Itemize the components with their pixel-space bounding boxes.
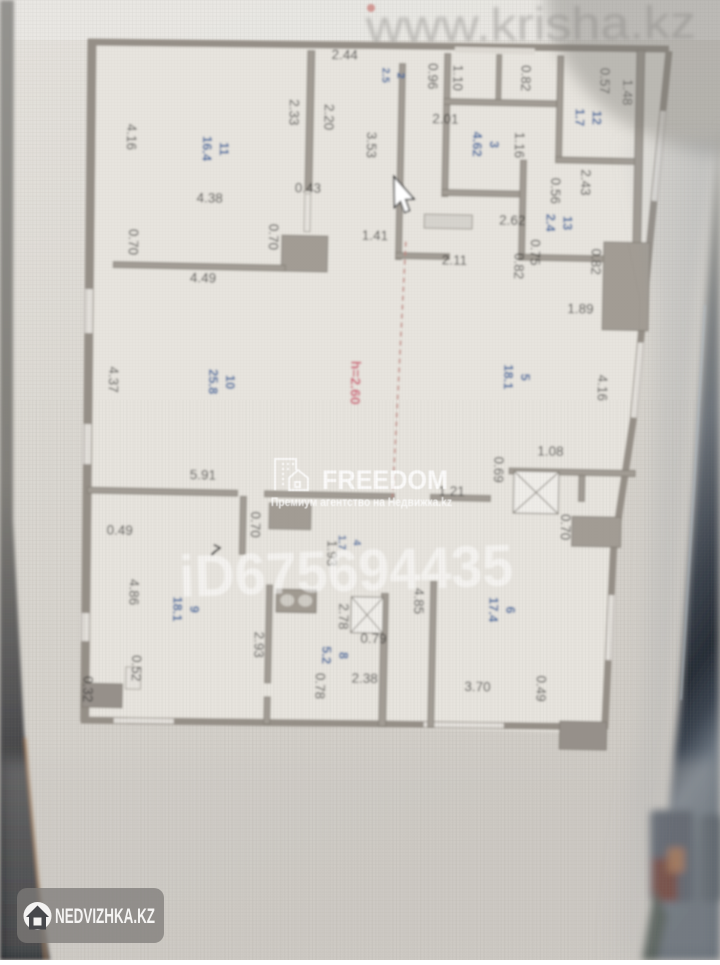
svg-text:NEDVIZHKA.KZ: NEDVIZHKA.KZ [55, 905, 155, 928]
